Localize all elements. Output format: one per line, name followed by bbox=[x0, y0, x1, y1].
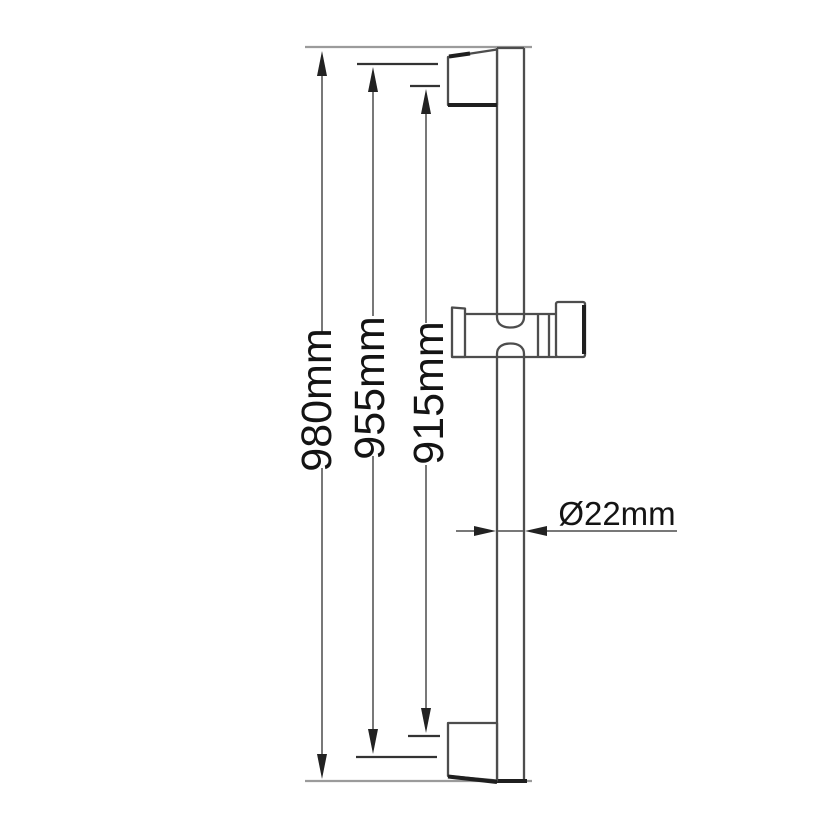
dim-955-arrow-up bbox=[368, 67, 378, 92]
drawing-svg: 980mm 955mm 915mm Ø22mm bbox=[0, 0, 830, 830]
dim-diameter-label: Ø22mm bbox=[558, 495, 675, 532]
technical-drawing-shower-rail: 980mm 955mm 915mm Ø22mm bbox=[0, 0, 830, 830]
rail-stub-upper bbox=[497, 314, 524, 328]
dim-915-label: 915mm bbox=[405, 321, 453, 464]
dim-955-label: 955mm bbox=[346, 316, 394, 459]
bottom-bracket-body bbox=[448, 723, 497, 781]
dim-980-label: 980mm bbox=[293, 328, 341, 471]
rail bbox=[495, 48, 527, 781]
dimension-overall: 980mm bbox=[293, 51, 341, 779]
bottom-wall-bracket bbox=[448, 723, 497, 782]
rail-tube-walls bbox=[497, 48, 524, 780]
dim-915-arrow-down bbox=[421, 708, 431, 733]
dim-diameter-arrow-left bbox=[525, 526, 547, 536]
dimension-inner: 915mm bbox=[405, 86, 453, 736]
dim-955-arrow-down bbox=[368, 729, 378, 754]
top-bracket-body bbox=[448, 50, 497, 106]
dim-915-arrow-up bbox=[421, 89, 431, 114]
holder-cup-lip bbox=[452, 308, 465, 358]
top-wall-bracket bbox=[448, 50, 497, 106]
dimension-diameter: Ø22mm bbox=[456, 495, 677, 536]
slider-collar-lines bbox=[538, 314, 549, 357]
dim-980-arrow-down bbox=[317, 754, 327, 779]
slider-assembly bbox=[452, 302, 585, 357]
dim-diameter-arrow-right bbox=[474, 526, 496, 536]
lock-knob bbox=[556, 302, 585, 357]
rail-stub-lower bbox=[497, 344, 524, 358]
dim-980-arrow-up bbox=[317, 51, 327, 76]
